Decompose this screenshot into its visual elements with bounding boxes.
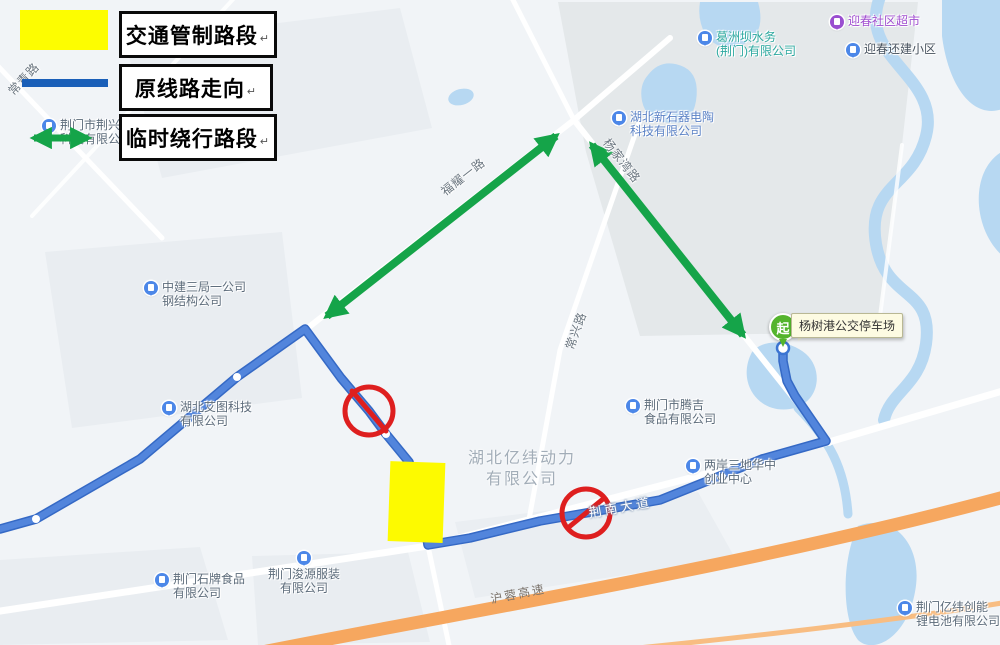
legend-swatch-detour-arrow — [8, 126, 114, 150]
poi-shipai-food: 荆门石牌食品 有限公司 — [155, 572, 245, 600]
building-icon[interactable] — [846, 43, 860, 57]
legend-label-detour: 临时绕行路段↵ — [119, 114, 277, 161]
return-mark: ↵ — [260, 32, 270, 45]
building-icon[interactable] — [686, 459, 700, 473]
map-canvas[interactable]: 常青路 福耀一路 杨家湾路 常兴路 荆南大道 沪蓉高速 荆门市荆兴电 科技有限公… — [0, 0, 1000, 645]
legend-swatch-traffic-control — [20, 10, 108, 50]
start-marker-tail — [779, 339, 787, 351]
shop-icon[interactable] — [830, 15, 844, 29]
traffic-control-zone-rect — [388, 461, 446, 543]
poi-junyuan-garment: 荆门浚源服装 有限公司 — [268, 550, 340, 595]
poi-chuangneng-battery: 荆门亿纬创能 锂电池有限公司 — [898, 600, 1000, 628]
poi-xinshiqi-ceramics: 湖北新石器电陶 科技有限公司 — [612, 110, 714, 138]
poi-zhongjian-steel: 中建三局一公司 钢结构公司 — [144, 280, 246, 308]
legend-label-traffic-control: 交通管制路段↵ — [119, 11, 277, 58]
bus-depot-tooltip[interactable]: 杨树港公交停车场 — [791, 313, 903, 338]
building-icon[interactable] — [162, 401, 176, 415]
building-icon[interactable] — [612, 111, 626, 125]
poi-tengji-food: 荆门市腾吉 食品有限公司 — [626, 398, 716, 426]
legend-swatch-original-route — [22, 79, 108, 87]
building-icon[interactable] — [898, 601, 912, 615]
poi-yingchun-supermarket: 迎春社区超市 — [830, 14, 920, 29]
building-icon[interactable] — [155, 573, 169, 587]
poi-liangan-incubator: 两岸三地华中 创业中心 — [686, 458, 776, 486]
poi-yingchun-community: 迎春还建小区 — [846, 42, 936, 57]
route-waypoint-dot — [233, 373, 241, 381]
route-waypoint-dot — [32, 515, 40, 523]
detour-arrow-northwest — [327, 136, 556, 316]
no-entry-sign — [345, 387, 393, 435]
return-mark: ↵ — [260, 135, 270, 148]
building-icon[interactable] — [144, 281, 158, 295]
building-icon[interactable] — [626, 399, 640, 413]
return-mark: ↵ — [247, 85, 257, 98]
area-label-eve-energy: 湖北亿纬动力 有限公司 — [462, 448, 582, 490]
poi-gezhouba-water: 葛洲坝水务 (荆门)有限公司 — [698, 30, 796, 58]
building-icon[interactable] — [698, 31, 712, 45]
poi-aitu-tech: 湖北艾图科技 有限公司 — [162, 400, 252, 428]
building-icon[interactable] — [297, 551, 311, 565]
legend-label-original-route: 原线路走向↵ — [119, 64, 273, 111]
